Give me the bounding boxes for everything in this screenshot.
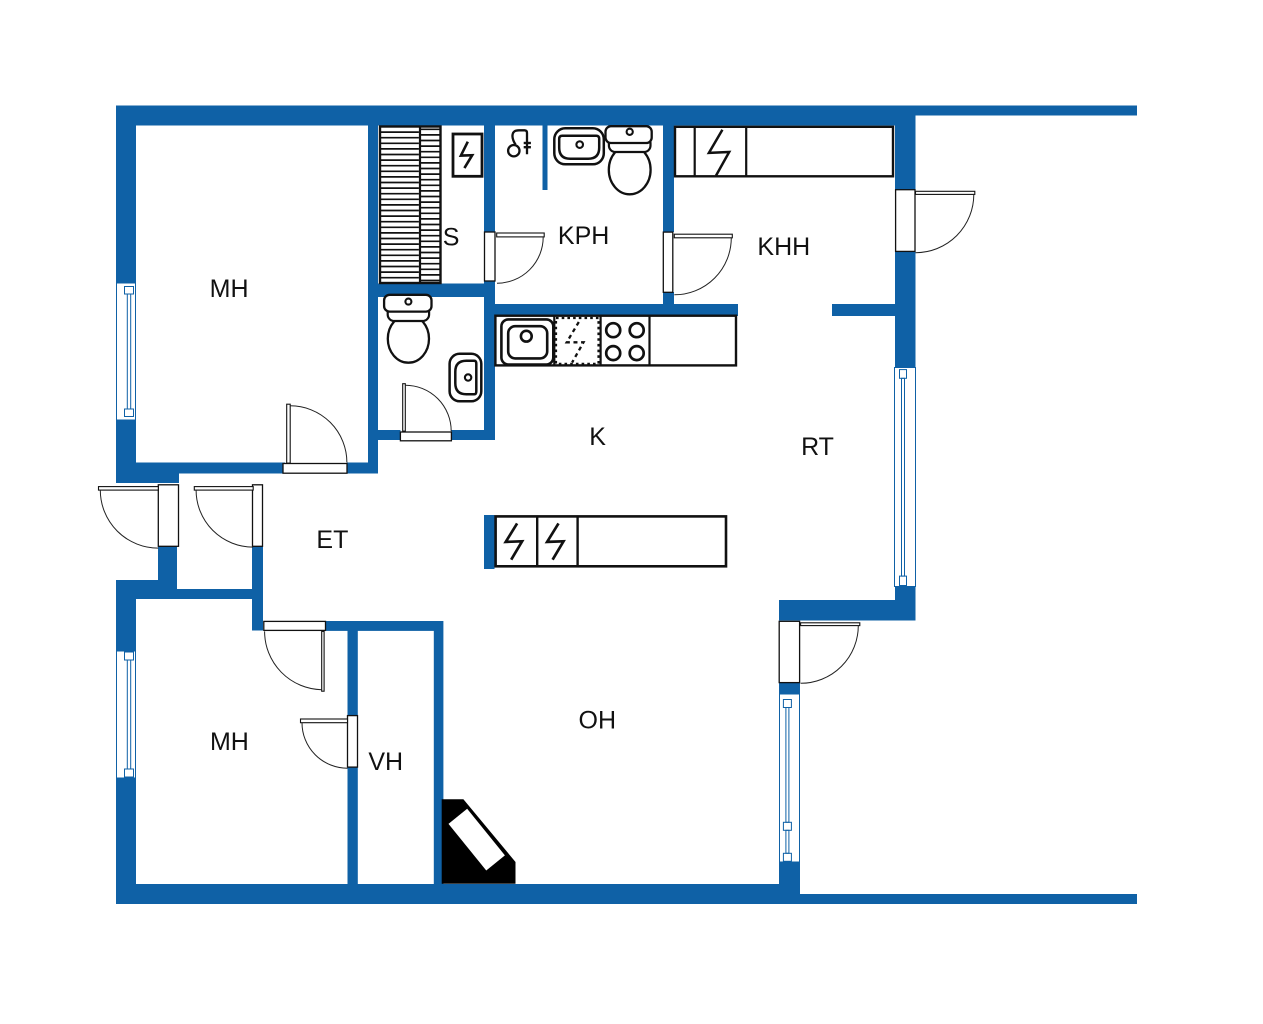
svg-text:OH: OH xyxy=(579,707,617,735)
svg-text:KPH: KPH xyxy=(558,222,609,250)
svg-text:K: K xyxy=(589,423,606,451)
svg-text:S: S xyxy=(443,224,460,252)
svg-text:KHH: KHH xyxy=(757,233,810,261)
svg-text:MH: MH xyxy=(210,728,249,756)
svg-text:RT: RT xyxy=(801,433,834,461)
svg-text:MH: MH xyxy=(210,275,249,303)
svg-text:VH: VH xyxy=(368,748,403,776)
svg-text:ET: ET xyxy=(316,526,348,554)
